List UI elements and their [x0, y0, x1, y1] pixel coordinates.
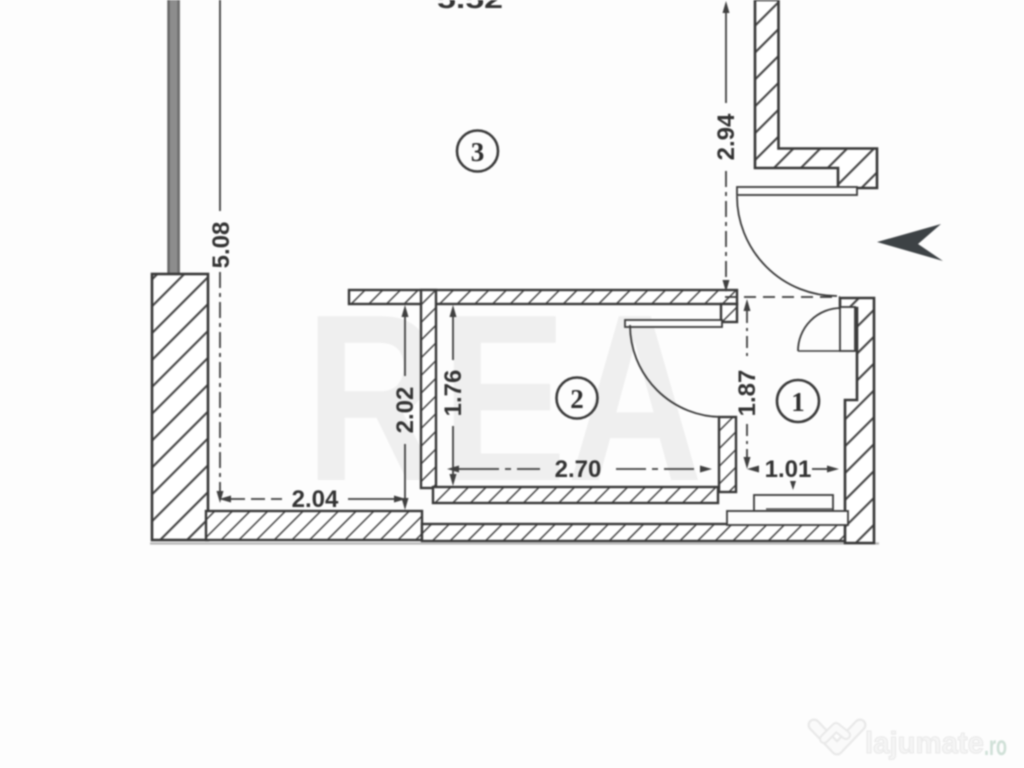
svg-text:1.01: 1.01 [765, 456, 812, 483]
svg-text:1: 1 [791, 387, 805, 417]
svg-text:3: 3 [471, 137, 485, 167]
svg-text:2.70: 2.70 [555, 456, 602, 483]
svg-text:2: 2 [570, 384, 584, 414]
svg-text:5.08: 5.08 [208, 222, 235, 269]
svg-text:5.52: 5.52 [437, 0, 503, 14]
svg-text:2.94: 2.94 [713, 113, 740, 160]
svg-text:2.04: 2.04 [292, 486, 339, 513]
svg-text:.ro: .ro [984, 730, 1007, 761]
svg-text:2.02: 2.02 [392, 387, 419, 434]
svg-text:1.76: 1.76 [440, 370, 467, 417]
svg-text:1.87: 1.87 [734, 370, 761, 417]
svg-text:lajumate: lajumate [865, 725, 984, 760]
